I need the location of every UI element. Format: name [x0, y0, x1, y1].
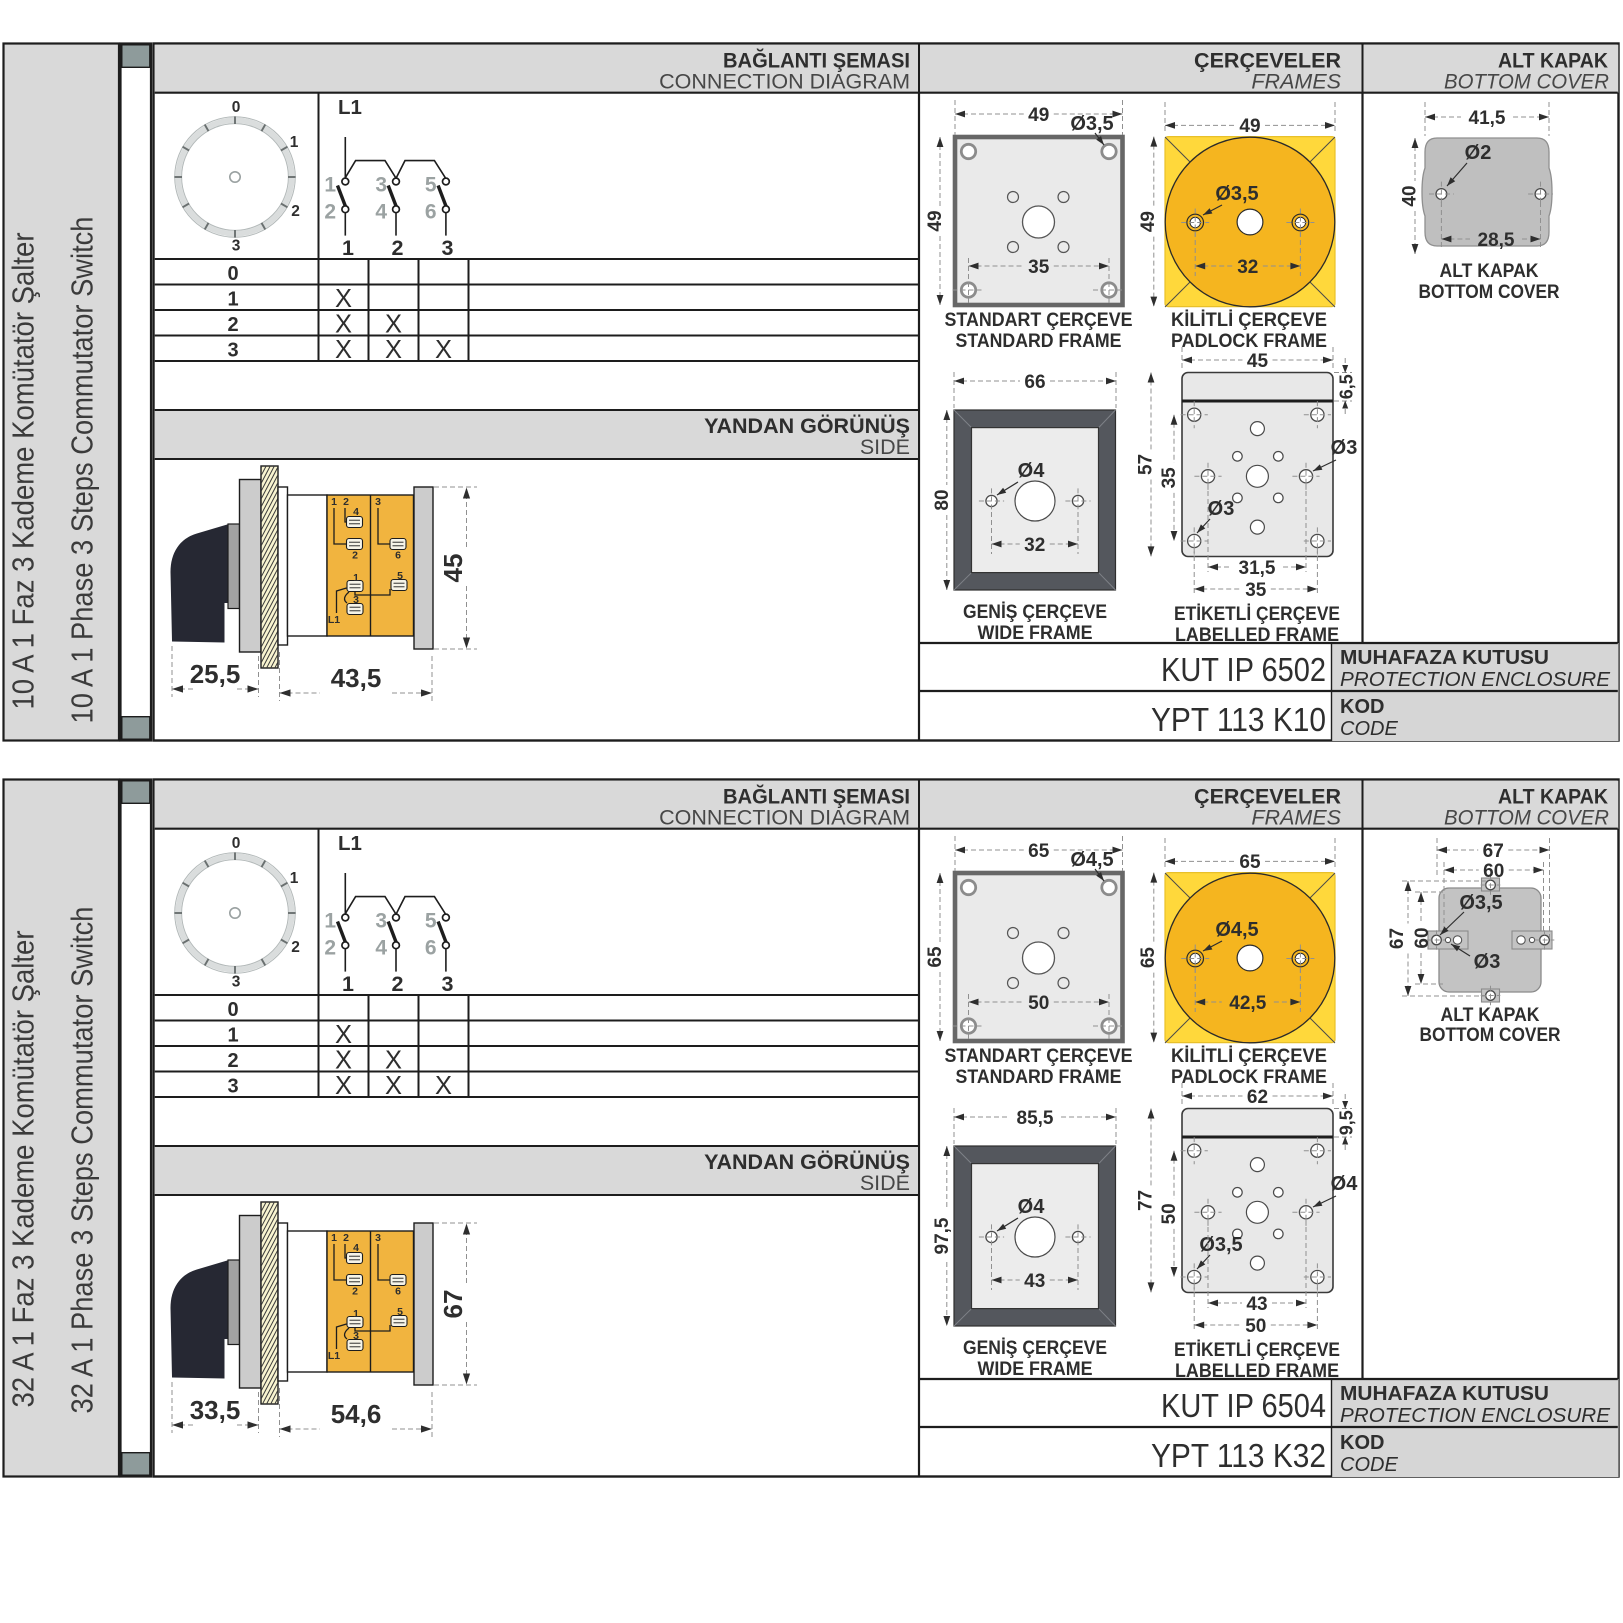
svg-text:2: 2 [352, 1286, 358, 1298]
svg-text:3: 3 [375, 910, 387, 933]
svg-text:FRAMES: FRAMES [1251, 70, 1341, 94]
svg-text:10 A 1 Phase 3 Steps Commutato: 10 A 1 Phase 3 Steps Commutator Switch [65, 217, 100, 724]
svg-text:ALT KAPAK: ALT KAPAK [1441, 1005, 1540, 1026]
svg-text:2: 2 [392, 972, 404, 996]
svg-text:ALT KAPAK: ALT KAPAK [1440, 261, 1539, 282]
svg-text:43,5: 43,5 [331, 663, 382, 693]
svg-text:3: 3 [353, 1330, 359, 1342]
svg-text:CODE: CODE [1340, 1454, 1398, 1476]
svg-text:MUHAFAZA KUTUSU: MUHAFAZA KUTUSU [1340, 1383, 1549, 1405]
svg-text:62: 62 [1247, 1087, 1268, 1108]
svg-text:60: 60 [1483, 861, 1504, 882]
svg-text:MUHAFAZA KUTUSU: MUHAFAZA KUTUSU [1340, 647, 1549, 669]
svg-text:X: X [335, 1047, 352, 1075]
svg-text:BOTTOM COVER: BOTTOM COVER [1444, 806, 1609, 830]
svg-text:3: 3 [375, 174, 387, 197]
svg-text:54,6: 54,6 [331, 1399, 382, 1429]
svg-text:4: 4 [353, 1242, 359, 1254]
svg-text:Ø3,5: Ø3,5 [1215, 183, 1258, 205]
svg-text:49: 49 [1138, 211, 1159, 232]
svg-text:1: 1 [290, 870, 299, 887]
svg-text:31,5: 31,5 [1239, 558, 1276, 579]
svg-text:Ø3: Ø3 [1474, 951, 1501, 973]
svg-text:Ø3: Ø3 [1331, 437, 1358, 459]
svg-text:65: 65 [1028, 841, 1050, 862]
svg-text:65: 65 [925, 946, 946, 968]
svg-text:X: X [385, 311, 402, 339]
svg-text:2: 2 [352, 550, 358, 562]
svg-text:5: 5 [425, 910, 437, 933]
svg-text:L1: L1 [338, 832, 362, 855]
svg-text:BOTTOM COVER: BOTTOM COVER [1444, 70, 1609, 94]
svg-text:65: 65 [1138, 947, 1159, 969]
svg-text:SIDE: SIDE [860, 1171, 910, 1195]
svg-text:Ø3: Ø3 [1208, 498, 1235, 520]
svg-text:Ø3,5: Ø3,5 [1070, 113, 1113, 135]
svg-text:Ø4,5: Ø4,5 [1215, 919, 1258, 941]
svg-text:2: 2 [227, 1050, 238, 1072]
svg-text:2: 2 [343, 496, 349, 508]
svg-text:28,5: 28,5 [1478, 230, 1515, 251]
svg-text:L1: L1 [338, 96, 362, 119]
svg-text:57: 57 [1135, 454, 1156, 475]
svg-text:3: 3 [442, 236, 454, 260]
svg-text:4: 4 [375, 201, 387, 224]
svg-text:1: 1 [324, 174, 336, 197]
svg-text:45: 45 [438, 554, 468, 583]
svg-text:WIDE FRAME: WIDE FRAME [978, 623, 1093, 644]
svg-text:Ø4: Ø4 [1018, 460, 1046, 482]
svg-text:X: X [335, 285, 352, 313]
svg-text:0: 0 [227, 263, 238, 285]
svg-text:77: 77 [1135, 1190, 1156, 1211]
svg-text:45: 45 [1247, 351, 1269, 372]
svg-text:2: 2 [227, 314, 238, 336]
svg-text:3: 3 [442, 972, 454, 996]
svg-text:3: 3 [227, 1076, 238, 1098]
svg-text:5: 5 [397, 1306, 403, 1318]
svg-text:BOTTOM COVER: BOTTOM COVER [1419, 282, 1560, 303]
svg-text:80: 80 [932, 489, 953, 510]
svg-text:6: 6 [395, 1286, 401, 1298]
svg-text:25,5: 25,5 [190, 659, 241, 689]
svg-text:PADLOCK FRAME: PADLOCK FRAME [1171, 331, 1327, 352]
svg-text:X: X [435, 1072, 452, 1100]
svg-text:CODE: CODE [1340, 718, 1398, 740]
svg-text:Ø3,5: Ø3,5 [1459, 892, 1502, 914]
svg-text:ETİKETLİ ÇERÇEVE: ETİKETLİ ÇERÇEVE [1174, 604, 1340, 625]
svg-text:35: 35 [1245, 580, 1267, 601]
svg-text:3: 3 [353, 594, 359, 606]
svg-text:PADLOCK FRAME: PADLOCK FRAME [1171, 1067, 1327, 1088]
svg-text:STANDARD FRAME: STANDARD FRAME [956, 331, 1122, 352]
svg-text:1: 1 [342, 972, 354, 996]
svg-text:KOD: KOD [1340, 1432, 1384, 1454]
svg-text:66: 66 [1024, 372, 1045, 393]
svg-text:X: X [335, 1021, 352, 1049]
svg-text:32: 32 [1237, 257, 1258, 278]
svg-text:KUT IP 6502: KUT IP 6502 [1161, 651, 1326, 688]
svg-text:X: X [385, 1072, 402, 1100]
svg-text:97,5: 97,5 [932, 1217, 953, 1254]
svg-text:L1: L1 [328, 1350, 340, 1362]
svg-text:3: 3 [375, 496, 381, 508]
svg-text:Ø4: Ø4 [1018, 1196, 1046, 1218]
svg-text:6,5: 6,5 [1337, 374, 1357, 399]
svg-text:43: 43 [1024, 1271, 1045, 1292]
svg-text:KİLİTLİ ÇERÇEVE: KİLİTLİ ÇERÇEVE [1171, 1046, 1327, 1067]
svg-text:32: 32 [1024, 535, 1045, 556]
svg-text:PROTECTION ENCLOSURE: PROTECTION ENCLOSURE [1340, 669, 1611, 691]
svg-text:Ø4: Ø4 [1331, 1173, 1359, 1195]
svg-text:0: 0 [227, 999, 238, 1021]
svg-text:GENİŞ ÇERÇEVE: GENİŞ ÇERÇEVE [963, 602, 1107, 623]
svg-text:PROTECTION ENCLOSURE: PROTECTION ENCLOSURE [1340, 1405, 1611, 1427]
svg-text:Ø3,5: Ø3,5 [1199, 1234, 1242, 1256]
svg-text:1: 1 [290, 134, 299, 151]
svg-text:CONNECTION DIAGRAM: CONNECTION DIAGRAM [659, 806, 910, 830]
svg-text:49: 49 [1239, 116, 1260, 137]
svg-text:50: 50 [1245, 1316, 1266, 1337]
svg-text:50: 50 [1028, 993, 1049, 1014]
svg-text:40: 40 [1399, 185, 1420, 206]
svg-text:41,5: 41,5 [1469, 108, 1506, 129]
svg-text:3: 3 [227, 340, 238, 362]
svg-text:1: 1 [331, 1232, 337, 1244]
svg-text:L1: L1 [328, 614, 340, 626]
svg-text:WIDE FRAME: WIDE FRAME [978, 1359, 1093, 1380]
svg-text:2: 2 [324, 201, 336, 224]
svg-text:49: 49 [925, 210, 946, 231]
svg-text:2: 2 [291, 203, 300, 220]
svg-text:67: 67 [1387, 928, 1408, 949]
svg-text:KUT IP 6504: KUT IP 6504 [1161, 1387, 1326, 1424]
svg-text:KİLİTLİ ÇERÇEVE: KİLİTLİ ÇERÇEVE [1171, 310, 1327, 331]
svg-text:X: X [335, 1072, 352, 1100]
svg-text:3: 3 [232, 238, 241, 255]
svg-text:YPT 113 K32: YPT 113 K32 [1151, 1437, 1326, 1474]
svg-text:1: 1 [227, 289, 238, 311]
svg-text:67: 67 [438, 1290, 468, 1319]
svg-text:ETİKETLİ ÇERÇEVE: ETİKETLİ ÇERÇEVE [1174, 1340, 1340, 1361]
svg-text:CONNECTION DIAGRAM: CONNECTION DIAGRAM [659, 70, 910, 94]
svg-text:35: 35 [1159, 467, 1180, 489]
svg-text:2: 2 [324, 937, 336, 960]
svg-text:X: X [435, 336, 452, 364]
svg-text:3: 3 [375, 1232, 381, 1244]
svg-text:GENİŞ ÇERÇEVE: GENİŞ ÇERÇEVE [963, 1338, 1107, 1359]
svg-text:X: X [385, 336, 402, 364]
svg-text:SIDE: SIDE [860, 435, 910, 459]
svg-text:1: 1 [342, 236, 354, 260]
svg-text:0: 0 [232, 99, 241, 116]
svg-text:6: 6 [425, 937, 437, 960]
svg-text:1: 1 [324, 910, 336, 933]
svg-text:67: 67 [1483, 841, 1504, 862]
svg-text:1: 1 [353, 572, 359, 584]
svg-text:5: 5 [397, 570, 403, 582]
svg-text:10 A 1 Faz 3 Kademe Komütatör: 10 A 1 Faz 3 Kademe Komütatör Şalter [6, 233, 41, 710]
svg-text:32 A 1 Phase 3 Steps Commutato: 32 A 1 Phase 3 Steps Commutator Switch [65, 907, 100, 1414]
svg-text:0: 0 [232, 835, 241, 852]
svg-text:X: X [335, 336, 352, 364]
svg-text:YPT 113 K10: YPT 113 K10 [1151, 701, 1326, 738]
svg-text:STANDART ÇERÇEVE: STANDART ÇERÇEVE [945, 1046, 1133, 1067]
svg-text:Ø4,5: Ø4,5 [1070, 849, 1113, 871]
svg-text:5: 5 [425, 174, 437, 197]
svg-text:KOD: KOD [1340, 696, 1384, 718]
svg-text:85,5: 85,5 [1017, 1108, 1054, 1129]
svg-text:2: 2 [392, 236, 404, 260]
svg-text:2: 2 [343, 1232, 349, 1244]
svg-text:65: 65 [1239, 852, 1261, 873]
svg-text:BOTTOM COVER: BOTTOM COVER [1420, 1025, 1561, 1046]
svg-text:35: 35 [1028, 257, 1050, 278]
svg-text:1: 1 [353, 1308, 359, 1320]
svg-text:X: X [335, 311, 352, 339]
svg-text:1: 1 [227, 1025, 238, 1047]
svg-text:43: 43 [1246, 1294, 1267, 1315]
svg-text:50: 50 [1159, 1203, 1180, 1224]
svg-text:4: 4 [353, 506, 359, 518]
svg-text:4: 4 [375, 937, 387, 960]
svg-text:X: X [385, 1047, 402, 1075]
svg-text:6: 6 [425, 201, 437, 224]
svg-text:9,5: 9,5 [1337, 1110, 1357, 1135]
svg-text:32 A 1 Faz 3 Kademe Komütatör: 32 A 1 Faz 3 Kademe Komütatör Şalter [6, 931, 41, 1408]
svg-text:2: 2 [291, 939, 300, 956]
svg-text:60: 60 [1412, 927, 1433, 948]
svg-text:FRAMES: FRAMES [1251, 806, 1341, 830]
svg-text:6: 6 [395, 550, 401, 562]
svg-text:Ø2: Ø2 [1465, 142, 1492, 164]
svg-text:3: 3 [232, 974, 241, 991]
svg-text:33,5: 33,5 [190, 1395, 241, 1425]
svg-text:STANDARD FRAME: STANDARD FRAME [956, 1067, 1122, 1088]
svg-text:49: 49 [1028, 105, 1049, 126]
svg-text:STANDART ÇERÇEVE: STANDART ÇERÇEVE [945, 310, 1133, 331]
svg-text:1: 1 [331, 496, 337, 508]
svg-text:42,5: 42,5 [1229, 993, 1266, 1014]
